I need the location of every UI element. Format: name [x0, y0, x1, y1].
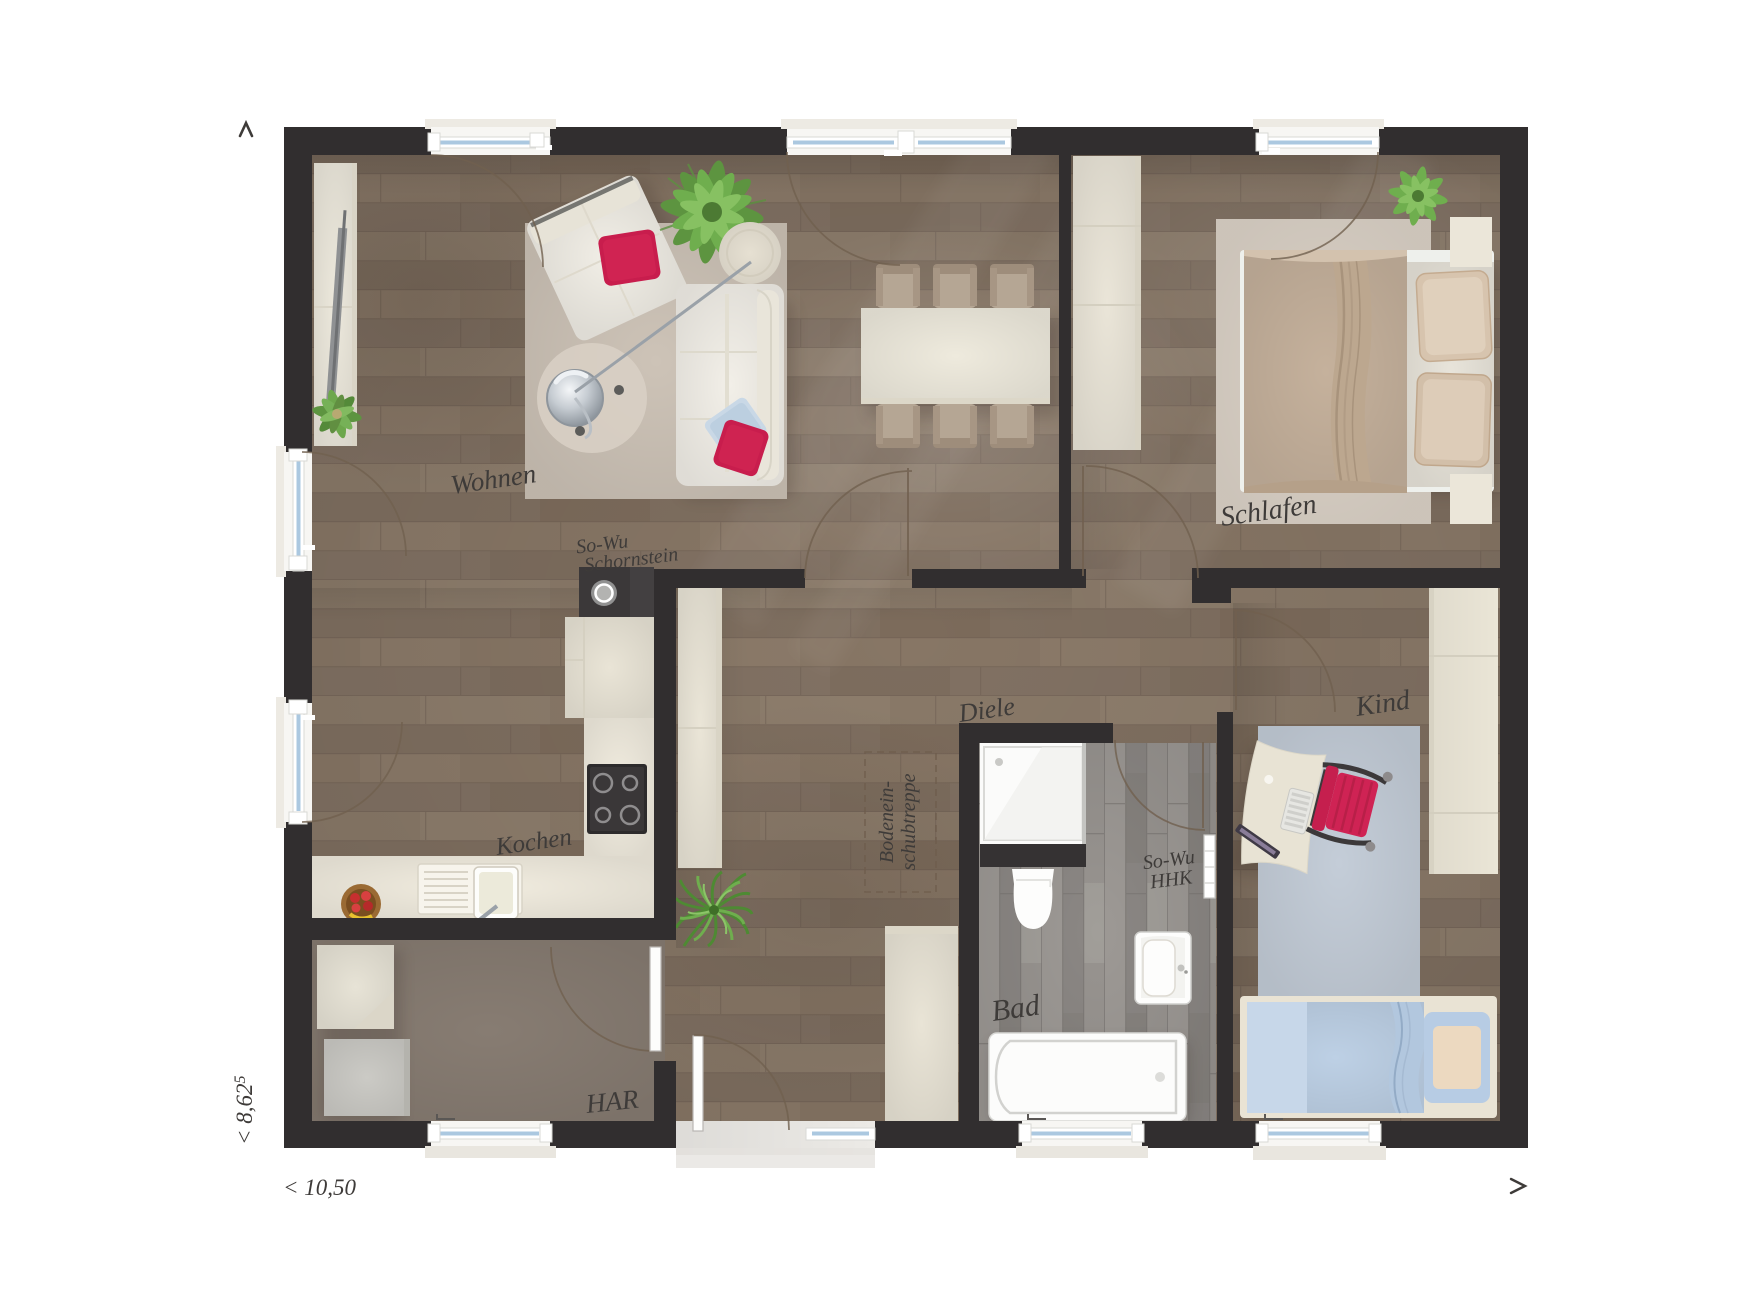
svg-text:HAR: HAR — [583, 1084, 640, 1119]
svg-text:< 8,625: < 8,625 — [232, 1075, 257, 1145]
svg-text:Bodenein-: Bodenein- — [876, 781, 898, 863]
svg-text:< 10,50: < 10,50 — [283, 1175, 357, 1200]
svg-text:schubtreppe: schubtreppe — [898, 773, 920, 870]
svg-text:Bad: Bad — [989, 988, 1042, 1028]
